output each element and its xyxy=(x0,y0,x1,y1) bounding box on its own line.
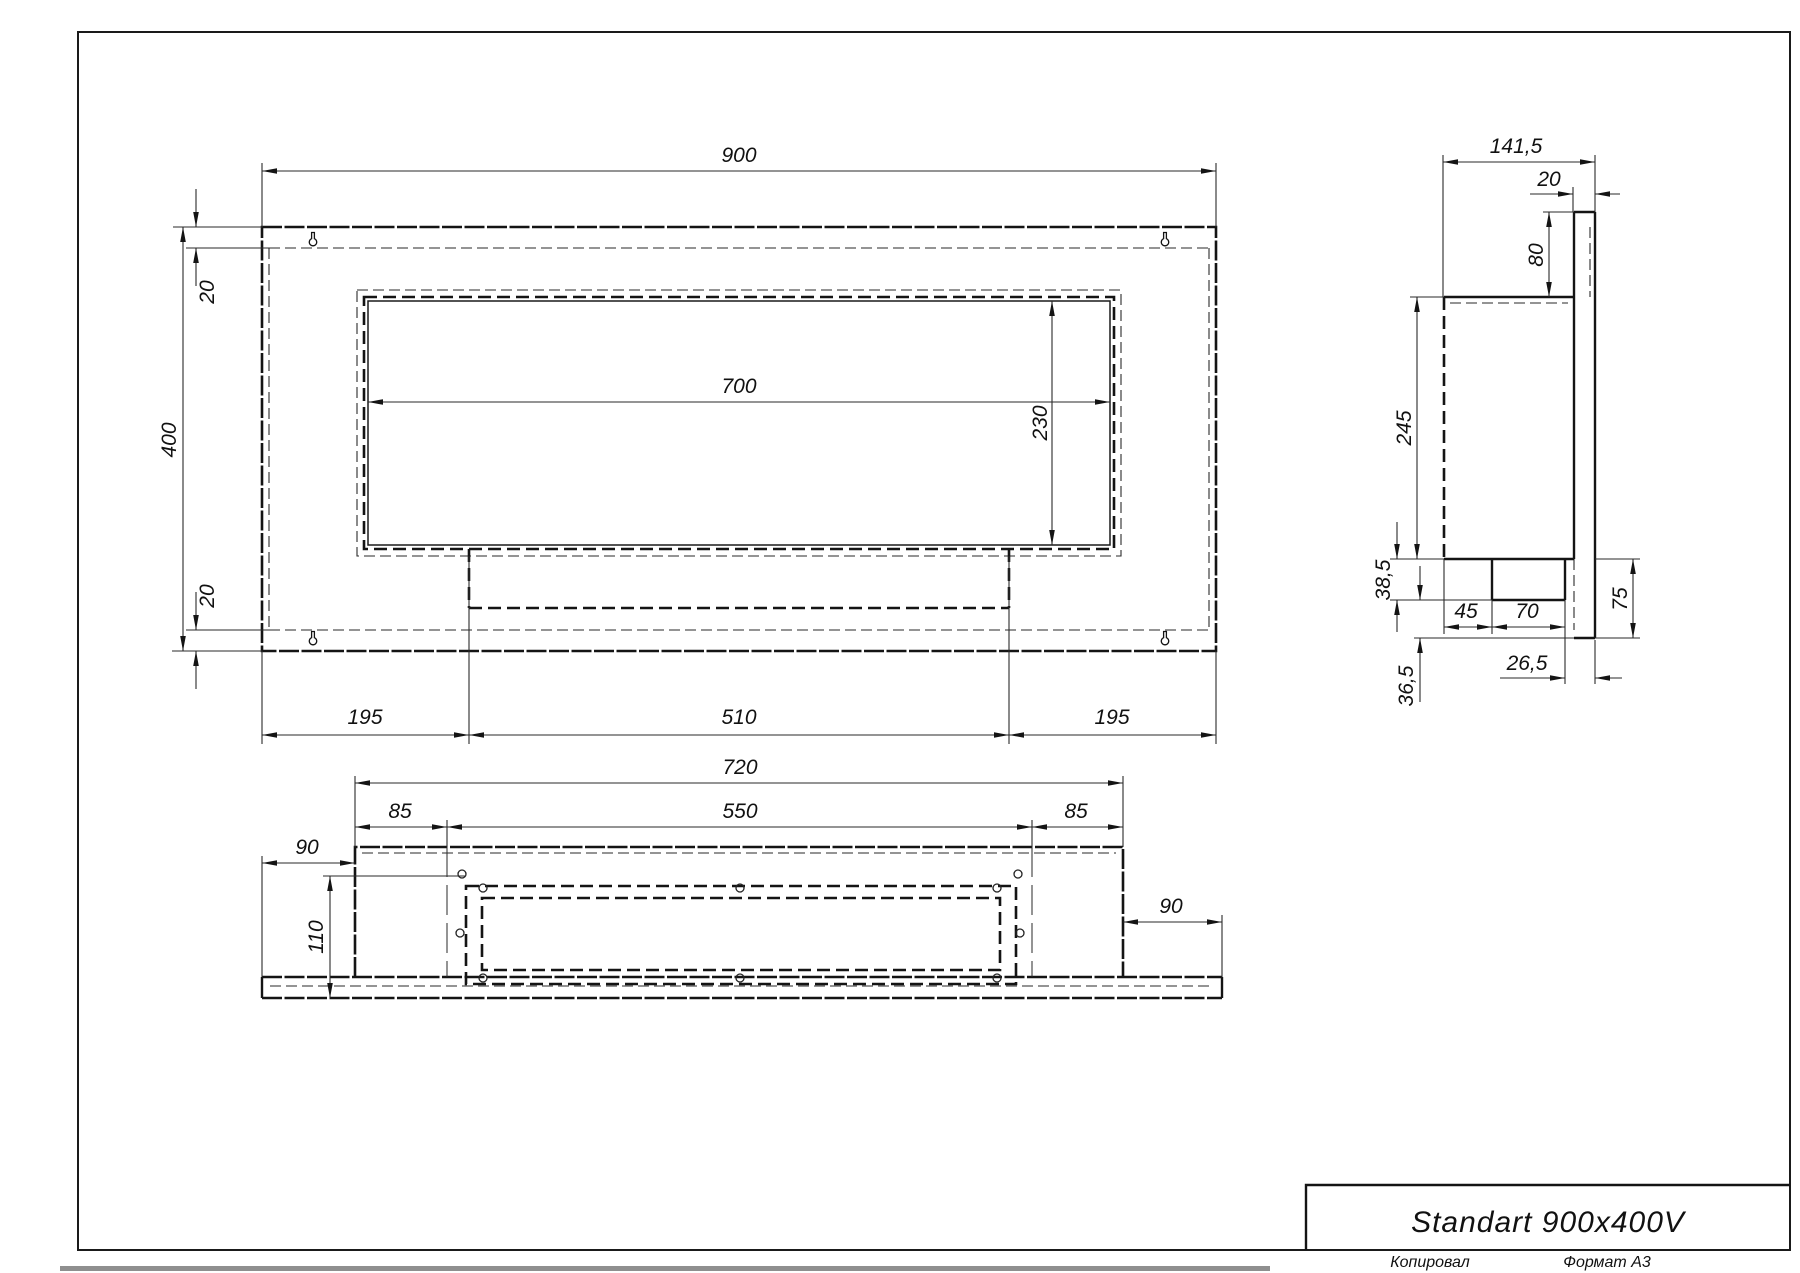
side-body-outline xyxy=(1444,297,1574,559)
dim-body-depth: 110 xyxy=(305,920,328,954)
dim-tray-offset: 45 xyxy=(1454,600,1478,623)
bottom-body-outline xyxy=(355,847,1123,977)
copied-by-label: Копировал xyxy=(1390,1254,1470,1271)
keyhole-mount-slot-icon xyxy=(1161,632,1168,645)
dim-bottom-inset: 20 xyxy=(196,584,219,609)
opening-clearance-dashed xyxy=(357,290,1121,556)
front-panel-ends xyxy=(262,977,1222,998)
hidden-burner-inner xyxy=(482,898,1000,970)
dim-overall-height: 400 xyxy=(158,422,181,457)
technical-drawing: 900 700 230 400 20 20 195 510 195 xyxy=(0,0,1800,1273)
dim-left-margin: 195 xyxy=(347,706,382,729)
dim-lower-height: 75 xyxy=(1609,587,1632,611)
dim-top-inset: 20 xyxy=(196,280,219,305)
hole-center-lines xyxy=(447,847,1032,977)
dim-tray-clearance: 26,5 xyxy=(1506,652,1548,675)
dim-opening-width: 700 xyxy=(721,375,756,398)
dim-depth: 141,5 xyxy=(1490,135,1543,158)
bottom-view: 720 85 550 85 90 90 110 xyxy=(262,756,1222,998)
opening-hidden-edge xyxy=(364,297,1114,549)
wall-plate-hidden-edges xyxy=(1574,227,1590,630)
dim-tray-drop: 38,5 xyxy=(1372,559,1395,600)
burner-tray-outline xyxy=(1492,559,1565,600)
opening-outline xyxy=(368,301,1110,545)
front-panel-strip xyxy=(262,977,1222,998)
keyhole-mount-slot-icon xyxy=(309,632,316,645)
dim-right-inset: 85 xyxy=(1064,800,1088,823)
dim-bracket-height: 80 xyxy=(1525,243,1548,267)
extension-lines xyxy=(172,163,1216,744)
dim-right-overhang: 90 xyxy=(1159,895,1183,918)
dim-overall-width: 900 xyxy=(721,144,756,167)
dim-left-inset: 85 xyxy=(388,800,412,823)
dim-left-overhang: 90 xyxy=(295,836,319,859)
drawing-sheet: 900 700 230 400 20 20 195 510 195 xyxy=(0,0,1800,1273)
dim-panel-thickness: 20 xyxy=(1536,168,1561,191)
dim-hole-span: 550 xyxy=(722,800,757,823)
dim-body-length: 720 xyxy=(722,756,757,779)
wall-plate-outline xyxy=(1574,212,1595,638)
model-title: Standart 900x400V xyxy=(1411,1206,1687,1239)
title-block: Standart 900x400V Копировал Формат А3 xyxy=(1306,1185,1790,1271)
format-label: Формат А3 xyxy=(1563,1254,1651,1271)
dim-opening-height: 230 xyxy=(1029,405,1052,441)
keyhole-mount-slot-icon xyxy=(309,233,316,246)
front-panel-outline xyxy=(262,227,1216,651)
front-view: 900 700 230 400 20 20 195 510 195 xyxy=(158,144,1216,744)
dim-body-height: 245 xyxy=(1393,410,1416,446)
dim-right-margin: 195 xyxy=(1094,706,1129,729)
hidden-back-panel xyxy=(269,248,1209,630)
dim-burner-width: 510 xyxy=(721,706,756,729)
page-edge-shadow xyxy=(60,1266,1270,1271)
dim-tray-width: 70 xyxy=(1515,600,1539,623)
keyhole-mount-slot-icon xyxy=(1161,233,1168,246)
dim-bottom-drop: 36,5 xyxy=(1395,665,1418,706)
hidden-edges xyxy=(270,853,1214,986)
side-view: 141,5 20 80 245 38,5 45 70 75 26,5 36,5 xyxy=(1372,135,1640,706)
hidden-burner-block xyxy=(469,549,1009,608)
